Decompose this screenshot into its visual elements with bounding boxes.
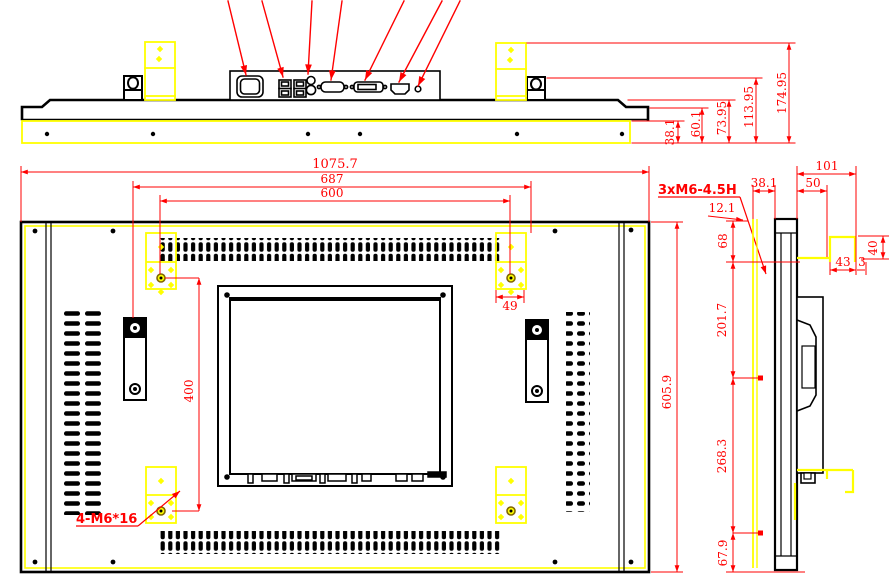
front-bezel-strip — [22, 121, 630, 143]
vent-strip-top — [160, 238, 500, 261]
hdmi-port — [391, 84, 409, 94]
dim-top-174-95: 174.95 — [775, 72, 789, 114]
drawing-sheet: 38.1 60.1 73.95 113.95 174.95 — [0, 0, 892, 587]
vent-strip-bottom — [160, 531, 500, 554]
power-inlet-inner — [241, 79, 260, 94]
handle-bracket-left — [124, 318, 146, 400]
dc-jack — [415, 86, 421, 92]
dim-vesa-height: 400 — [182, 380, 196, 403]
label-bracket-screw: 4-M6*16 — [76, 512, 137, 527]
handle-bracket-right — [526, 320, 548, 402]
dim-bottom-section: 67.9 — [716, 540, 730, 567]
dim-top-38-1: 38.1 — [663, 119, 677, 146]
center-module — [218, 286, 452, 486]
dim-top-113-95: 113.95 — [742, 86, 756, 128]
dim-vesa-width: 600 — [321, 186, 344, 200]
right-lug-bracket — [527, 77, 545, 100]
dim-top-60-1: 60.1 — [689, 111, 703, 138]
vent-column-right — [566, 312, 590, 512]
dim-bracket-width: 49 — [502, 299, 517, 313]
vent-column-left — [62, 310, 104, 515]
vga-port — [317, 82, 347, 92]
dim-hook-height: 40 — [866, 240, 880, 255]
dim-mount-width: 687 — [321, 172, 344, 186]
dim-overall-width: 1075.7 — [312, 157, 358, 172]
dim-rear-depth: 50 — [805, 176, 820, 190]
dvi-port — [350, 82, 386, 92]
dim-overall-height: 605.9 — [660, 375, 674, 409]
dim-top-73-95: 73.95 — [715, 101, 729, 135]
left-lug-bracket — [124, 76, 142, 100]
dim-lower-section: 268.3 — [715, 439, 729, 473]
dim-top-section: 68 — [716, 233, 730, 248]
dim-overall-depth: 101 — [816, 159, 839, 173]
engineering-drawing: 38.1 60.1 73.95 113.95 174.95 — [0, 0, 892, 587]
side-panel-body — [775, 219, 797, 570]
dim-hook-gap: 3 — [858, 255, 866, 269]
side-rear-chassis — [797, 297, 823, 483]
dim-top-inset: 12.1 — [709, 201, 736, 215]
dim-front-depth: 38.1 — [751, 176, 778, 190]
dim-hook-depth: 43 — [835, 255, 850, 269]
label-vesa-thread: 3xM6-4.5H — [658, 183, 737, 198]
dim-upper-section: 201.7 — [715, 303, 729, 337]
